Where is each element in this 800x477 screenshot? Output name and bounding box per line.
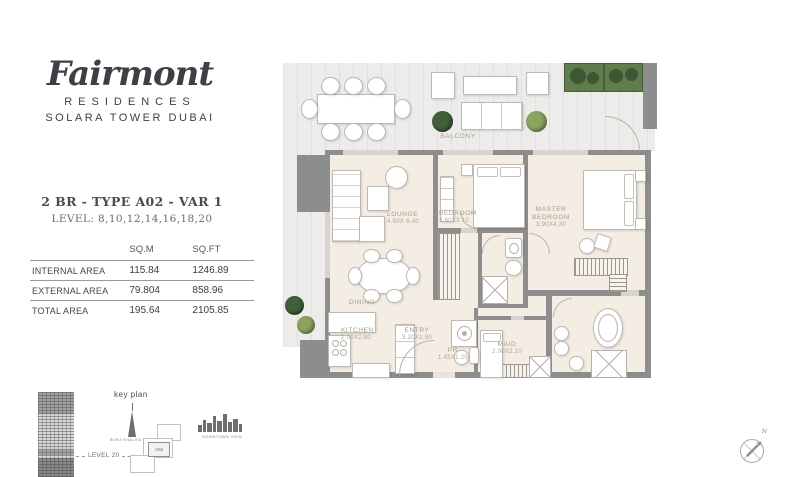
planter-box	[564, 63, 604, 92]
key-plan-unit-highlight: A02	[148, 442, 170, 457]
room-label-maid: MAID 2.00X2.10	[485, 341, 529, 356]
key-plan-title: key plan	[114, 390, 148, 399]
washer-icon	[451, 320, 477, 347]
row-sqm: 79.804	[127, 281, 190, 301]
row-sqm: 115.84	[127, 261, 190, 281]
row-label: INTERNAL AREA	[30, 261, 127, 281]
room-label-master: MASTER BEDROOM 3.90X4.30	[529, 206, 573, 229]
outdoor-chair	[344, 77, 363, 95]
area-col-sqft: SQ.FT	[190, 240, 254, 261]
plant-icon	[526, 111, 547, 132]
outdoor-chair	[301, 99, 318, 119]
dining-table	[357, 258, 411, 294]
floor-plan: BALCONY LOUNGE 4.60X 6.40 BEDROOM 3.60X3…	[283, 58, 661, 380]
nightstand	[635, 170, 646, 182]
row-sqft: 858.96	[190, 281, 254, 301]
outdoor-chair	[367, 123, 386, 141]
dining-chair	[386, 249, 403, 263]
outdoor-chair	[367, 77, 386, 95]
sink-icon	[505, 238, 522, 258]
outdoor-chair	[321, 123, 340, 141]
nightstand	[635, 218, 646, 230]
row-sqft: 1246.89	[190, 261, 254, 281]
unit-levels: LEVEL: 8,10,12,14,16,18,20	[30, 213, 234, 225]
room-label-pr: PR 1.45X1.25	[433, 347, 473, 362]
sink-icon	[554, 341, 569, 356]
table-row: INTERNAL AREA 115.84 1246.89	[30, 261, 254, 281]
area-col-sqm: SQ.M	[127, 240, 190, 261]
room-label-bedroom: BEDROOM 3.60X3.10	[439, 210, 477, 225]
toilet-icon	[505, 260, 522, 276]
table-row: EXTERNAL AREA 79.804 858.96	[30, 281, 254, 301]
sliding-door	[325, 208, 330, 278]
brand-block: Fairmont RESIDENCES SOLARA TOWER DUBAI	[28, 56, 232, 124]
nightstand	[461, 164, 473, 176]
outdoor-sofa	[461, 102, 523, 130]
room-label-lounge: LOUNGE 4.60X 6.40	[387, 211, 419, 226]
room-label-kitchen: KITCHEN 2.90X2.80	[341, 327, 374, 342]
brand-tower: SOLARA TOWER DUBAI	[28, 112, 232, 124]
tower-band	[38, 450, 74, 455]
tower-band	[38, 458, 74, 477]
key-plan-level: LEVEL 20	[88, 452, 119, 459]
brand-residences: RESIDENCES	[28, 96, 232, 108]
level-dash	[76, 456, 85, 457]
dining-chair	[406, 267, 420, 285]
row-sqft: 2105.85	[190, 301, 254, 321]
room-label-dining: DINING	[349, 299, 375, 307]
door-gap	[511, 316, 524, 320]
room-label-entry: ENTRY 3.20X1.80	[395, 327, 439, 342]
tower-band	[38, 392, 74, 414]
toilet-icon	[569, 356, 584, 371]
coffee-table	[367, 186, 389, 211]
shower-icon	[529, 356, 551, 378]
bed	[583, 170, 637, 230]
shower-icon	[482, 276, 508, 304]
outdoor-chair	[344, 123, 363, 141]
wall-segment	[478, 304, 528, 308]
burj-spike	[128, 411, 136, 437]
room-label-balcony: BALCONY	[428, 133, 488, 141]
dining-chair	[363, 249, 380, 263]
burj-khalifa-icon	[128, 403, 136, 437]
row-sqm: 195.64	[127, 301, 190, 321]
sink-icon	[554, 326, 569, 341]
sofa	[332, 170, 361, 242]
key-plan-floorplate	[130, 455, 155, 473]
sofa-chaise	[359, 216, 385, 242]
wardrobe-hatch	[438, 233, 460, 300]
kitchen-island	[352, 363, 390, 378]
row-label: EXTERNAL AREA	[30, 281, 127, 301]
unit-title-block: 2 BR - TYPE A02 - VAR 1 LEVEL: 8,10,12,1…	[30, 194, 234, 225]
outdoor-dining-table	[317, 94, 395, 124]
shower-icon	[591, 350, 627, 378]
wall-column	[297, 155, 330, 212]
compass-north-label: N	[762, 428, 767, 435]
compass-icon	[735, 430, 773, 470]
sliding-door	[533, 150, 588, 155]
unit-title: 2 BR - TYPE A02 - VAR 1	[30, 194, 234, 209]
armchair	[385, 166, 408, 189]
burj-needle	[132, 403, 133, 411]
planter-box	[604, 63, 643, 92]
outdoor-armchair	[431, 72, 455, 99]
downtown-view-label: DOWNTOWN VIEW	[194, 434, 250, 439]
outdoor-chair	[394, 99, 411, 119]
sliding-door	[343, 150, 398, 155]
wardrobe-hatch	[609, 274, 627, 292]
table-row: TOTAL AREA 195.64 2105.85	[30, 301, 254, 321]
compass: N	[735, 430, 773, 470]
wall-column	[643, 63, 657, 129]
bathtub-icon	[593, 308, 623, 348]
wall-column	[300, 340, 330, 378]
brand-logo: Fairmont	[28, 56, 232, 92]
plant-icon	[285, 296, 304, 315]
outdoor-armchair	[526, 72, 549, 95]
bed	[473, 164, 525, 228]
outdoor-chair	[321, 77, 340, 95]
downtown-skyline-icon	[198, 414, 242, 432]
plant-icon	[297, 316, 315, 334]
area-table: SQ.M SQ.FT INTERNAL AREA 115.84 1246.89 …	[30, 240, 254, 320]
outdoor-sofa	[463, 76, 517, 95]
dining-chair	[348, 267, 362, 285]
row-label: TOTAL AREA	[30, 301, 127, 321]
wall-segment	[645, 150, 651, 378]
plant-icon	[432, 111, 453, 132]
tower-illustration-icon	[38, 392, 74, 477]
area-col-empty	[30, 240, 127, 261]
entry-door-gap	[433, 372, 455, 378]
dining-chair	[386, 289, 403, 303]
sliding-door	[443, 150, 493, 155]
wardrobe-hatch	[501, 364, 531, 378]
